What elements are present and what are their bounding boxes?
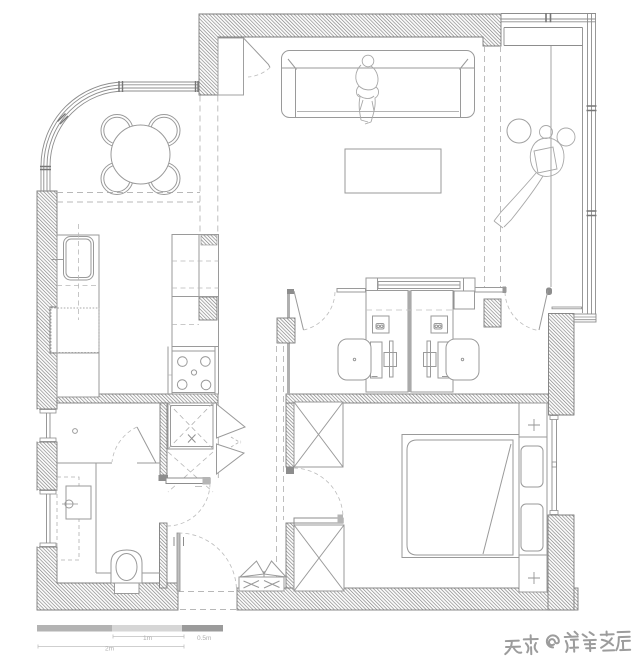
svg-text:0.5m: 0.5m — [197, 635, 211, 642]
svg-text:1m: 1m — [143, 635, 152, 642]
svg-text:2m: 2m — [105, 646, 114, 653]
